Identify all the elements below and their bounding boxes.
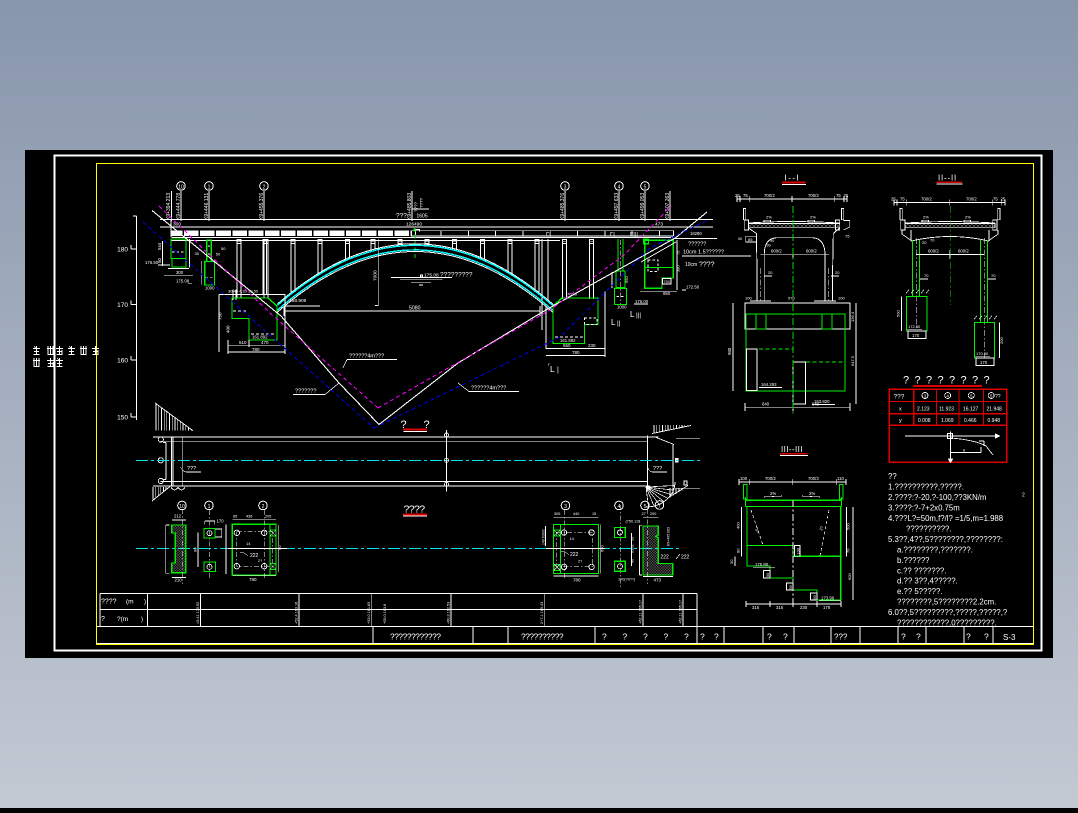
svg-text:640: 640: [812, 402, 820, 407]
svg-text:70: 70: [846, 548, 851, 553]
svg-text:??????????: ??????????: [521, 632, 564, 642]
svg-text:172.50: 172.50: [686, 285, 700, 290]
svg-text:III--III: III--III: [781, 445, 803, 454]
svg-text:+52.4 163.16: +52.4 163.16: [295, 602, 299, 624]
svg-text:630/2: 630/2: [631, 544, 635, 553]
svg-text:?: ?: [961, 375, 967, 387]
svg-text:161.892: 161.892: [560, 338, 576, 343]
svg-text:?: ?: [984, 375, 990, 387]
svg-text:30 40 4.20 30 50: 30 40 4.20 30 50: [228, 289, 259, 294]
svg-text:980: 980: [727, 347, 732, 355]
svg-text:2: 2: [1022, 493, 1025, 499]
svg-text:2%: 2%: [923, 215, 929, 220]
svg-text:3: 3: [564, 184, 567, 190]
svg-text:b.??????: b.??????: [897, 556, 930, 565]
svg-text:75: 75: [743, 193, 748, 198]
svg-text:?: ?: [700, 632, 705, 642]
svg-text:2%: 2%: [766, 215, 772, 220]
svg-text:????: ????: [699, 262, 715, 269]
svg-text:50: 50: [789, 585, 793, 589]
svg-text:50: 50: [221, 246, 226, 251]
svg-text:700/2: 700/2: [764, 193, 775, 198]
svg-text:0.008: 0.008: [918, 418, 931, 424]
svg-text:85: 85: [748, 237, 753, 242]
svg-text:600: 600: [847, 573, 852, 580]
svg-text:????: ????: [414, 201, 419, 212]
svg-text:????????????: ????????????: [390, 632, 441, 642]
svg-text:780: 780: [573, 578, 581, 583]
svg-text:): ): [144, 600, 146, 606]
svg-text:950: 950: [624, 276, 629, 283]
svg-text:780: 780: [249, 577, 257, 582]
svg-text:7000: 7000: [373, 270, 379, 281]
svg-text:700/2: 700/2: [966, 197, 977, 202]
svg-text:????: ????: [419, 197, 424, 208]
svg-text:4: 4: [618, 184, 621, 190]
svg-text:200: 200: [650, 512, 656, 516]
svg-text:950: 950: [663, 291, 671, 296]
svg-text:440: 440: [573, 512, 579, 516]
svg-text:+62.11 165.17: +62.11 165.17: [639, 600, 643, 624]
svg-text:600/2: 600/2: [806, 249, 817, 254]
svg-text:30: 30: [729, 559, 734, 564]
svg-text:??????????.: ??????????.: [906, 524, 952, 533]
svg-text:90: 90: [193, 547, 198, 552]
svg-text:1?0(?0??): 1?0(?0??): [618, 578, 636, 582]
svg-text:?: ?: [903, 375, 909, 387]
svg-text:||: ||: [617, 320, 621, 327]
svg-text:75: 75: [836, 193, 841, 198]
svg-text:6.0??,5?????????,?????,?????,?: 6.0??,5?????????,?????,?????,?: [888, 608, 1008, 617]
svg-text:(m: (m: [126, 599, 134, 606]
svg-text:160: 160: [117, 358, 128, 365]
svg-text:212: 212: [174, 514, 182, 519]
svg-text:500: 500: [896, 310, 901, 317]
svg-text:25: 25: [1001, 197, 1006, 202]
svg-text:647.5: 647.5: [850, 355, 855, 366]
svg-text:400: 400: [736, 522, 741, 529]
svg-text:75: 75: [676, 250, 681, 255]
svg-text:600/2: 600/2: [928, 249, 939, 254]
svg-text:90: 90: [277, 545, 282, 550]
svg-text:+53.0 161.83: +53.0 161.83: [367, 602, 371, 624]
svg-text:222: 222: [661, 555, 670, 561]
svg-text:2+7.1 169.43: 2+7.1 169.43: [540, 602, 544, 624]
svg-text:173.96: 173.96: [821, 595, 835, 600]
svg-text:170: 170: [217, 519, 225, 524]
svg-text:600/2: 600/2: [958, 249, 969, 254]
svg-text:???: ???: [187, 466, 196, 472]
svg-text:570: 570: [788, 296, 795, 301]
svg-text:L: L: [550, 364, 555, 374]
svg-text:700/3: 700/3: [808, 476, 819, 481]
svg-text:750: 750: [218, 312, 223, 320]
svg-text:222: 222: [570, 552, 579, 558]
svg-text:27: 27: [642, 512, 646, 516]
svg-text:780: 780: [572, 350, 580, 355]
svg-text:???: ???: [894, 394, 905, 401]
svg-text:15: 15: [592, 512, 596, 516]
svg-text:180: 180: [117, 247, 128, 254]
svg-text:1: 1: [208, 184, 211, 190]
svg-text:??: ??: [995, 394, 1001, 400]
svg-text:473: 473: [655, 221, 663, 227]
svg-text:90: 90: [770, 239, 774, 243]
svg-text:|: |: [557, 367, 559, 374]
svg-text:|||: |||: [636, 312, 641, 319]
svg-text:16280: 16280: [690, 231, 702, 236]
svg-text:): ): [141, 617, 143, 623]
svg-text:75: 75: [900, 197, 905, 202]
svg-text:1000: 1000: [617, 305, 627, 310]
svg-text:?: ?: [915, 375, 921, 387]
svg-text:???: ???: [653, 466, 662, 472]
svg-text:175.08: 175.08: [176, 278, 190, 283]
svg-text:K9+485.803: K9+485.803: [407, 193, 413, 220]
svg-text:10cm 1.5??????: 10cm 1.5??????: [683, 250, 724, 256]
svg-text:1000: 1000: [205, 285, 215, 290]
svg-text:4.???L?=50m,f?/l? =1/5,m=1.988: 4.???L?=50m,f?/l? =1/5,m=1.988: [888, 514, 1003, 523]
svg-text:???: ???: [834, 633, 848, 642]
svg-text:175.80: 175.80: [755, 562, 769, 567]
svg-text:510: 510: [239, 340, 247, 345]
svg-text:2?: 2?: [258, 559, 262, 563]
svg-text:5.3??,4??,5????????,????????:: 5.3??,4??,5????????,????????:: [888, 535, 1003, 544]
svg-text:+62.11 165.17: +62.11 165.17: [679, 600, 683, 624]
svg-text:176.00: 176.00: [635, 299, 649, 304]
svg-text:176.50: 176.50: [145, 260, 159, 265]
svg-text:230: 230: [800, 605, 808, 610]
svg-text:170: 170: [980, 360, 988, 365]
svg-text:30: 30: [195, 251, 200, 256]
svg-text:???: ???: [396, 213, 407, 220]
svg-text:16.127: 16.127: [963, 407, 979, 413]
svg-text:Γ|: Γ|: [610, 233, 615, 239]
svg-text:3: 3: [564, 504, 567, 510]
svg-text:?: ?: [901, 632, 906, 642]
svg-text:305: 305: [554, 512, 560, 516]
svg-text:5080: 5080: [409, 305, 421, 311]
svg-text:172.80: 172.80: [908, 324, 921, 329]
svg-text:L: L: [630, 310, 635, 319]
svg-text:210: 210: [175, 578, 183, 583]
svg-text:2%: 2%: [770, 491, 776, 496]
svg-text:500: 500: [846, 523, 851, 530]
svg-text:50: 50: [216, 252, 221, 257]
svg-text:L: L: [611, 318, 616, 327]
svg-text:d.?? 3??,4?????.: d.?? 3??,4?????.: [897, 577, 958, 586]
svg-text:780: 780: [252, 347, 260, 352]
svg-text:70: 70: [924, 273, 929, 278]
svg-text:10cm: 10cm: [685, 262, 697, 268]
svg-text:K9+507.263: K9+507.263: [665, 193, 671, 220]
svg-text:315: 315: [752, 605, 760, 610]
svg-text:65: 65: [233, 515, 237, 519]
svg-text:230: 230: [588, 343, 596, 348]
svg-text:????: ????: [101, 599, 117, 606]
svg-text:0.948: 0.948: [988, 418, 1001, 424]
svg-text:25: 25: [844, 193, 849, 198]
svg-text:300: 300: [176, 270, 184, 275]
svg-text:100: 100: [745, 296, 752, 301]
svg-text:14: 14: [246, 541, 251, 546]
svg-text:10: 10: [179, 504, 185, 510]
svg-text:10: 10: [178, 184, 184, 190]
svg-text:?: ?: [101, 616, 105, 623]
svg-text:25: 25: [735, 193, 740, 198]
svg-text:80: 80: [736, 548, 741, 553]
svg-text:50: 50: [631, 537, 635, 541]
svg-text:100: 100: [797, 548, 801, 554]
svg-text:170: 170: [912, 333, 920, 338]
svg-text:30: 30: [767, 244, 771, 248]
svg-text:168.909: 168.909: [289, 298, 307, 304]
svg-text:?: ?: [623, 632, 628, 642]
svg-text:?: ?: [767, 632, 772, 642]
svg-text:20: 20: [835, 270, 840, 275]
svg-text:700/2: 700/2: [921, 197, 932, 202]
svg-text:?: ?: [938, 375, 944, 387]
svg-text:?: ?: [602, 632, 607, 642]
svg-text:???????: ???????: [295, 389, 316, 395]
svg-text:1.069: 1.069: [941, 418, 954, 424]
svg-text:K9+446.131: K9+446.131: [204, 193, 210, 220]
svg-text:2.123: 2.123: [917, 407, 930, 413]
svg-text:+05.0 163.8: +05.0 163.8: [383, 604, 387, 624]
svg-text:110: 110: [837, 476, 844, 481]
svg-text:436: 436: [246, 515, 252, 519]
svg-text:700/2: 700/2: [765, 476, 776, 481]
svg-text:30: 30: [738, 236, 743, 241]
svg-text:??????4m???: ??????4m???: [471, 386, 506, 392]
svg-text:50: 50: [766, 573, 770, 577]
svg-text:600/2: 600/2: [771, 249, 782, 254]
svg-text:2?: 2?: [578, 560, 582, 564]
svg-text:?: ?: [926, 375, 932, 387]
svg-text:=5.41 170.92: =5.41 170.92: [196, 602, 200, 624]
svg-text:40: 40: [631, 559, 635, 563]
svg-text:640: 640: [762, 402, 770, 407]
svg-text:2%: 2%: [809, 491, 815, 496]
svg-text:2.????:?-20,?-100,??3KN/m: 2.????:?-20,?-100,??3KN/m: [888, 493, 986, 502]
svg-text:2: 2: [262, 504, 265, 510]
svg-text:2%: 2%: [965, 215, 971, 220]
svg-text:315: 315: [776, 605, 784, 610]
svg-text:????????,5????????2.2cm.: ????????,5????????2.2cm.: [897, 598, 996, 607]
svg-text:170.50: 170.50: [976, 351, 989, 356]
svg-text:K9+444.778: K9+444.778: [176, 193, 182, 220]
svg-text:136.4: 136.4: [850, 311, 855, 322]
svg-text:II--II: II--II: [938, 173, 957, 182]
svg-text:??????: ??????: [688, 242, 706, 248]
svg-text:0.466: 0.466: [964, 418, 977, 424]
svg-text:K9+455.376: K9+455.376: [259, 193, 265, 220]
svg-text:(750.118: (750.118: [626, 520, 641, 524]
svg-text:1605: 1605: [417, 213, 428, 219]
svg-text:?: ?: [643, 632, 648, 642]
svg-text:K9+499.053: K9+499.053: [640, 193, 646, 220]
svg-text:544: 544: [157, 242, 162, 250]
svg-text:150: 150: [117, 415, 128, 422]
svg-text:c.?? ???????.: c.?? ???????.: [897, 566, 946, 575]
svg-text:11.923: 11.923: [939, 407, 954, 413]
svg-text:140 630/2: 140 630/2: [541, 529, 545, 545]
svg-text:?: ?: [972, 375, 978, 387]
svg-text:25: 25: [891, 197, 896, 202]
svg-text:K9+485.376: K9+485.376: [560, 193, 566, 220]
svg-text:K9+495.063: K9+495.063: [666, 527, 670, 546]
svg-text:?: ?: [783, 632, 788, 642]
svg-text:?: ?: [664, 632, 669, 642]
svg-text:?: ?: [966, 632, 971, 642]
svg-text:470: 470: [261, 340, 269, 345]
svg-text:??: ??: [888, 472, 897, 481]
svg-text:3.????:?-7+2x0.75m: 3.????:?-7+2x0.75m: [888, 504, 960, 513]
svg-text:164.293: 164.293: [761, 382, 777, 387]
svg-text:?(m: ?(m: [117, 616, 128, 623]
svg-text:7: 7: [658, 503, 661, 509]
svg-text:75: 75: [993, 197, 998, 202]
svg-text:200: 200: [999, 337, 1004, 344]
svg-text:S-3: S-3: [1003, 633, 1016, 642]
svg-text:?: ?: [984, 632, 989, 642]
svg-text:100: 100: [740, 476, 748, 481]
svg-text:21.948: 21.948: [987, 407, 1003, 413]
svg-text:126490: 126490: [406, 221, 422, 227]
svg-text:170: 170: [117, 302, 128, 309]
svg-text:??????4m???: ??????4m???: [349, 354, 384, 360]
svg-text:400: 400: [226, 325, 231, 333]
svg-text:?: ?: [916, 632, 921, 642]
svg-text:205: 205: [265, 515, 271, 519]
svg-text:y: y: [899, 418, 902, 424]
svg-text:70: 70: [930, 238, 935, 243]
svg-text:e.?? 5?????.: e.?? 5?????.: [897, 587, 943, 596]
svg-text:750: 750: [664, 280, 670, 284]
svg-text:14: 14: [570, 536, 575, 541]
svg-text:690: 690: [600, 545, 605, 552]
svg-text:?: ?: [684, 632, 689, 642]
svg-text:1.??????????,?????.: 1.??????????,?????.: [888, 483, 964, 492]
svg-text:75: 75: [845, 234, 850, 239]
svg-text:Γ|: Γ|: [546, 233, 551, 239]
svg-text:161.892: 161.892: [252, 335, 268, 340]
svg-text:70: 70: [991, 273, 996, 278]
svg-text:Γ|||: Γ|||: [630, 233, 638, 239]
svg-text:5: 5: [644, 504, 647, 510]
svg-text:550: 550: [563, 343, 571, 348]
svg-text:????????????,0?????????.: ????????????,0?????????.: [897, 619, 997, 628]
svg-text:380: 380: [676, 265, 681, 272]
svg-text:?: ?: [714, 632, 719, 642]
svg-text:x: x: [899, 407, 902, 413]
svg-text:a.????????,???????.: a.????????,???????.: [897, 545, 973, 554]
svg-text:2: 2: [263, 184, 266, 190]
svg-text:2%: 2%: [810, 215, 816, 220]
svg-text:178: 178: [823, 605, 831, 610]
svg-text:700/2: 700/2: [808, 193, 819, 198]
svg-text:20: 20: [922, 240, 927, 245]
svg-text:+60.3 162.53: +60.3 162.53: [447, 602, 451, 624]
svg-text:I--I: I--I: [785, 174, 801, 183]
svg-text:5: 5: [644, 184, 647, 190]
svg-text:1: 1: [208, 504, 211, 510]
svg-text:222: 222: [681, 555, 690, 561]
svg-text:473: 473: [654, 578, 662, 583]
svg-text:50: 50: [813, 595, 817, 599]
svg-text:20: 20: [768, 270, 773, 275]
svg-text:?: ?: [949, 375, 955, 387]
svg-text:K9+497.633: K9+497.633: [614, 193, 620, 220]
svg-text:100: 100: [838, 296, 845, 301]
